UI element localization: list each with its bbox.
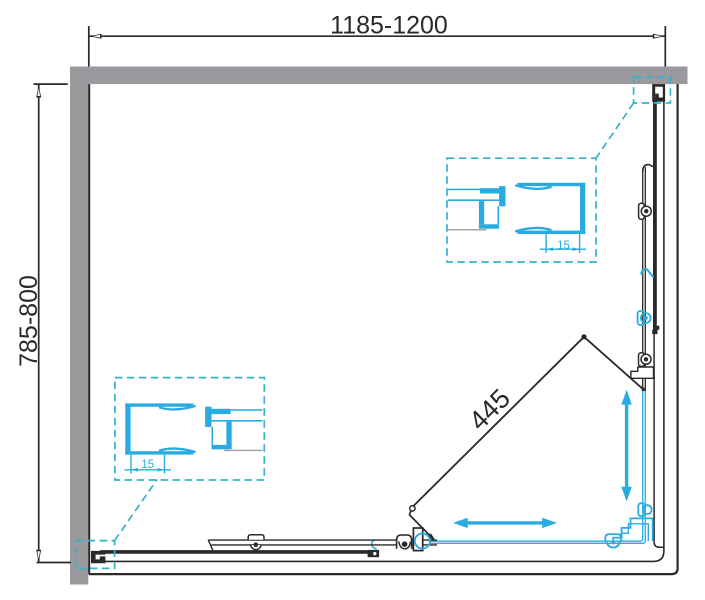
svg-text:1185-1200: 1185-1200	[330, 12, 448, 40]
svg-text:15: 15	[141, 459, 154, 471]
svg-text:785-800: 785-800	[15, 275, 43, 367]
svg-text:15: 15	[557, 240, 570, 252]
